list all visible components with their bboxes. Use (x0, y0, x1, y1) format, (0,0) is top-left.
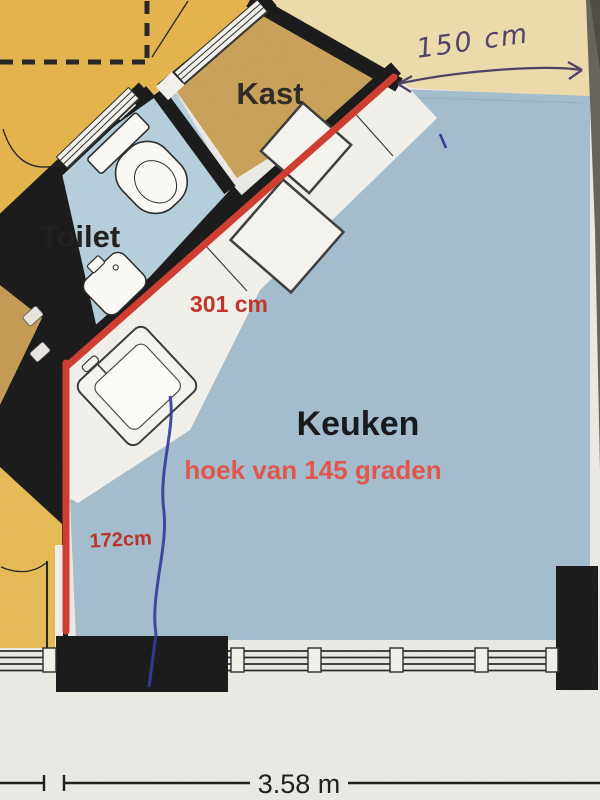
paper-texture (0, 0, 600, 800)
floor-plan-drawing: Kast Toilet Keuken 301 cm hoek van 145 g… (0, 0, 600, 800)
floor-plan-photo: Kast Toilet Keuken 301 cm hoek van 145 g… (0, 0, 600, 800)
